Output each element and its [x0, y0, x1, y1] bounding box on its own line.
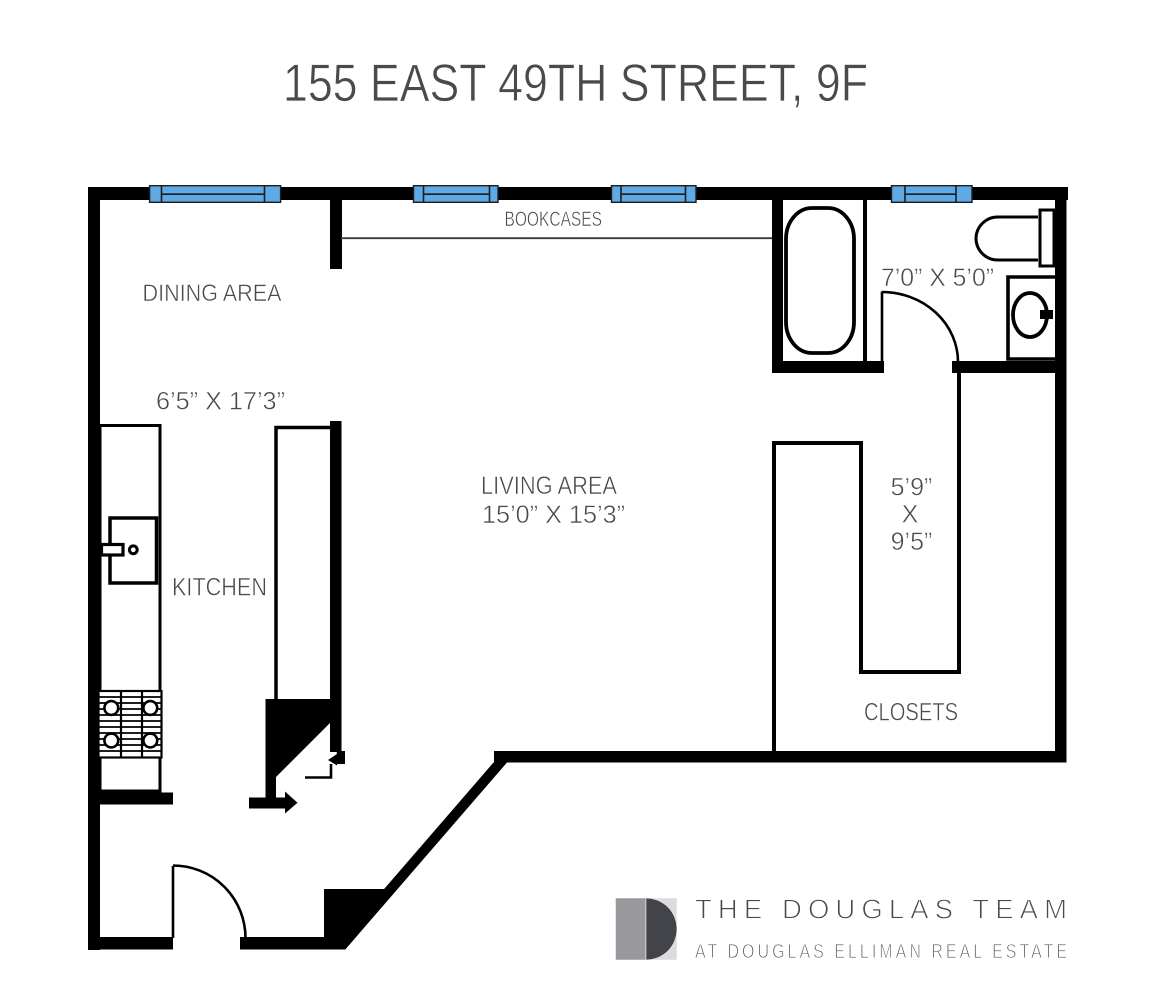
svg-text:7’0” X 5’0”: 7’0” X 5’0” — [881, 264, 994, 292]
svg-text:X: X — [902, 501, 919, 529]
svg-text:5’9”: 5’9” — [891, 474, 933, 502]
svg-text:15’0” X 15’3”: 15’0” X 15’3” — [482, 501, 625, 529]
svg-text:KITCHEN: KITCHEN — [172, 574, 267, 602]
svg-text:DINING AREA: DINING AREA — [143, 280, 282, 307]
svg-text:6’5” X 17’3”: 6’5” X 17’3” — [156, 388, 285, 416]
svg-text:9’5”: 9’5” — [891, 528, 933, 556]
svg-text:155 EAST 49TH STREET, 9F: 155 EAST 49TH STREET, 9F — [283, 54, 868, 113]
svg-text:BOOKCASES: BOOKCASES — [505, 207, 603, 231]
svg-text:LIVING AREA: LIVING AREA — [481, 472, 617, 500]
svg-text:CLOSETS: CLOSETS — [864, 699, 958, 727]
svg-text:AT DOUGLAS ELLIMAN REAL ESTATE: AT DOUGLAS ELLIMAN REAL ESTATE — [695, 939, 1067, 962]
svg-text:THE DOUGLAS TEAM: THE DOUGLAS TEAM — [695, 894, 1067, 925]
